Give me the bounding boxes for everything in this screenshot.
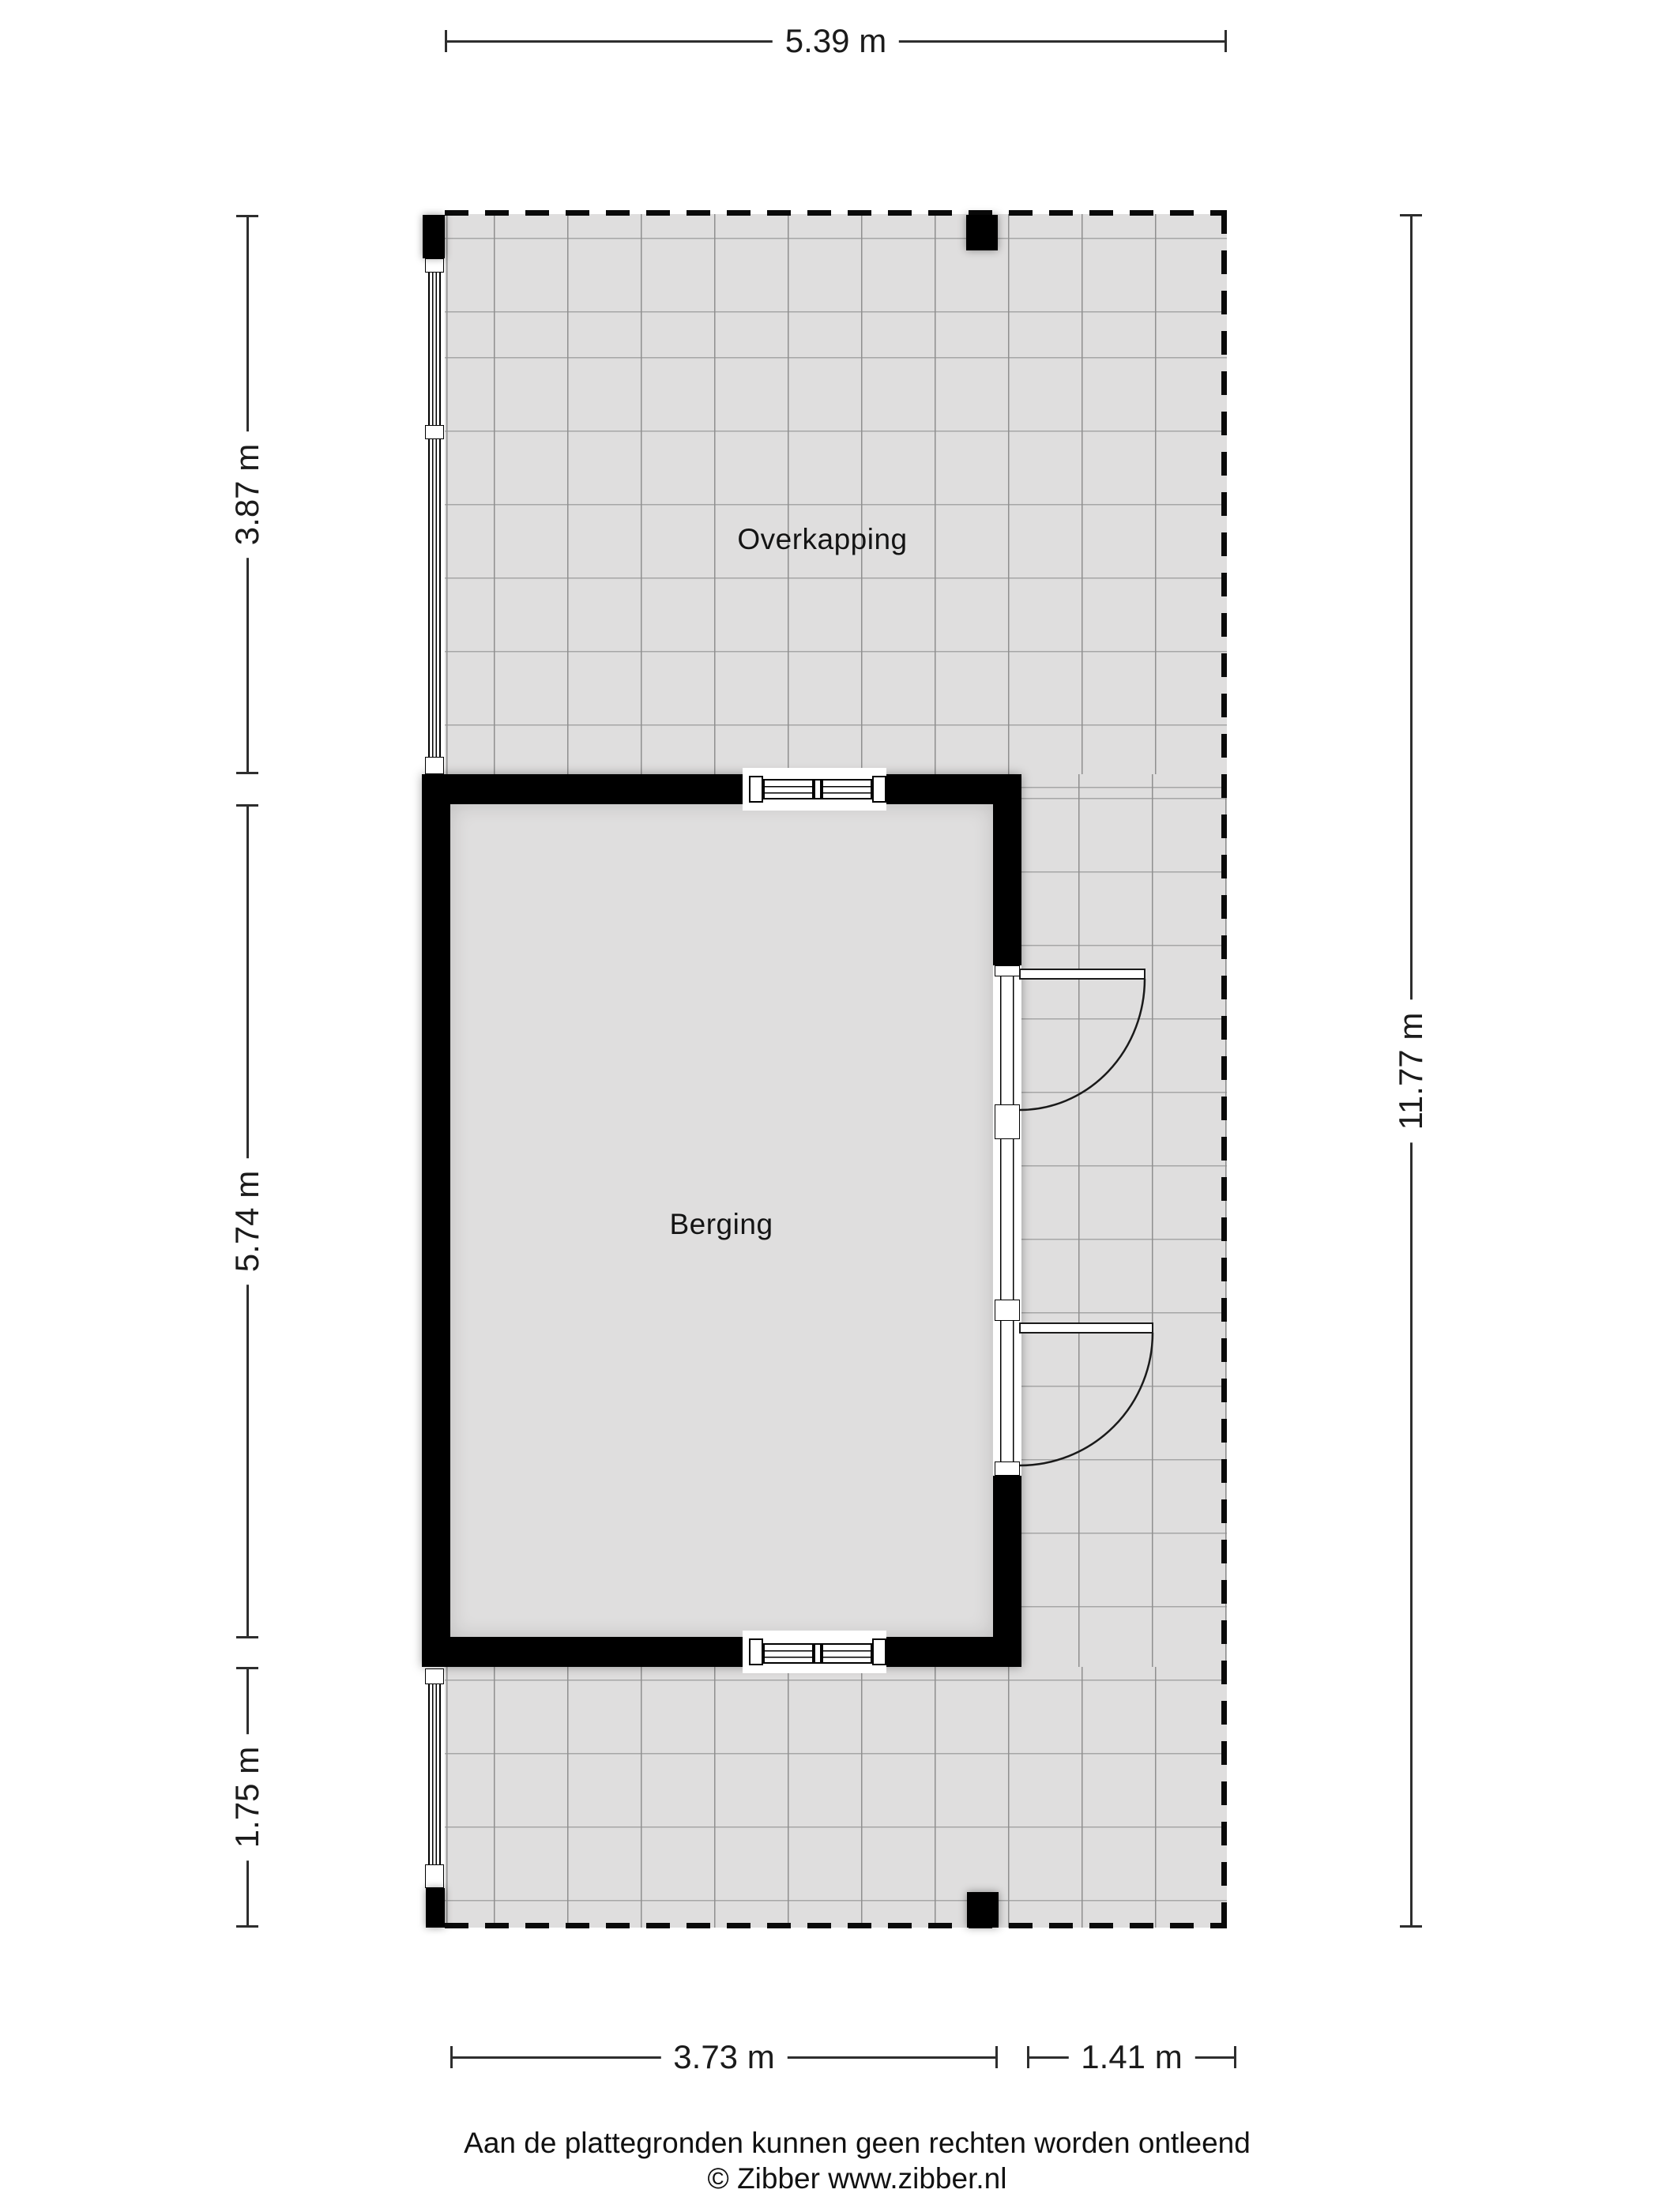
dimension-tick	[1234, 2046, 1236, 2068]
dimension-bottom-berging: 3.73 m	[450, 2046, 998, 2068]
dimension-tick	[236, 1925, 258, 1928]
door-2-leaf	[1020, 1323, 1153, 1333]
dimension-tick	[450, 2046, 453, 2068]
dimension-tick	[236, 215, 258, 217]
door-1-swing-arc	[1020, 979, 1145, 1110]
dimension-left-berging: 5.74 m	[236, 804, 258, 1638]
dimension-tick	[236, 804, 258, 807]
door-2-swing-arc	[1020, 1333, 1153, 1465]
dimension-label: 11.77 m	[1392, 999, 1430, 1142]
dimension-left-overkapping: 3.87 m	[236, 215, 258, 774]
dimension-label: 5.74 m	[228, 1158, 266, 1285]
footer-credit: © Zibber www.zibber.nl	[55, 2162, 1659, 2195]
dimension-tick	[1224, 30, 1227, 52]
dimension-bottom-right-strip: 1.41 m	[1027, 2046, 1236, 2068]
dimension-top: 5.39 m	[445, 30, 1227, 52]
dimension-label: 3.87 m	[228, 431, 266, 558]
dimension-label: 3.73 m	[660, 2038, 787, 2076]
floorplan-canvas: Overkapping Berging 5.39 m 3.73 m 1.41 m…	[0, 0, 1659, 2212]
dimension-label: 1.75 m	[228, 1734, 266, 1860]
dimension-tick	[1400, 1925, 1422, 1928]
dimension-tick	[1400, 214, 1422, 216]
dimension-label: 1.41 m	[1068, 2038, 1194, 2076]
dimension-right-total: 11.77 m	[1400, 214, 1422, 1928]
door-1-leaf	[1020, 969, 1145, 979]
dimension-tick	[236, 1636, 258, 1638]
dimension-tick	[236, 1667, 258, 1669]
room-label-overkapping: Overkapping	[737, 523, 907, 556]
room-label-berging: Berging	[669, 1208, 773, 1241]
dimension-tick	[236, 772, 258, 774]
dimension-tick	[445, 30, 447, 52]
dimension-tick	[1027, 2046, 1029, 2068]
dimension-left-bottom-strip: 1.75 m	[236, 1667, 258, 1928]
dimension-tick	[995, 2046, 998, 2068]
dimension-label: 5.39 m	[773, 22, 899, 60]
footer-disclaimer: Aan de plattegronden kunnen geen rechten…	[55, 2127, 1659, 2160]
